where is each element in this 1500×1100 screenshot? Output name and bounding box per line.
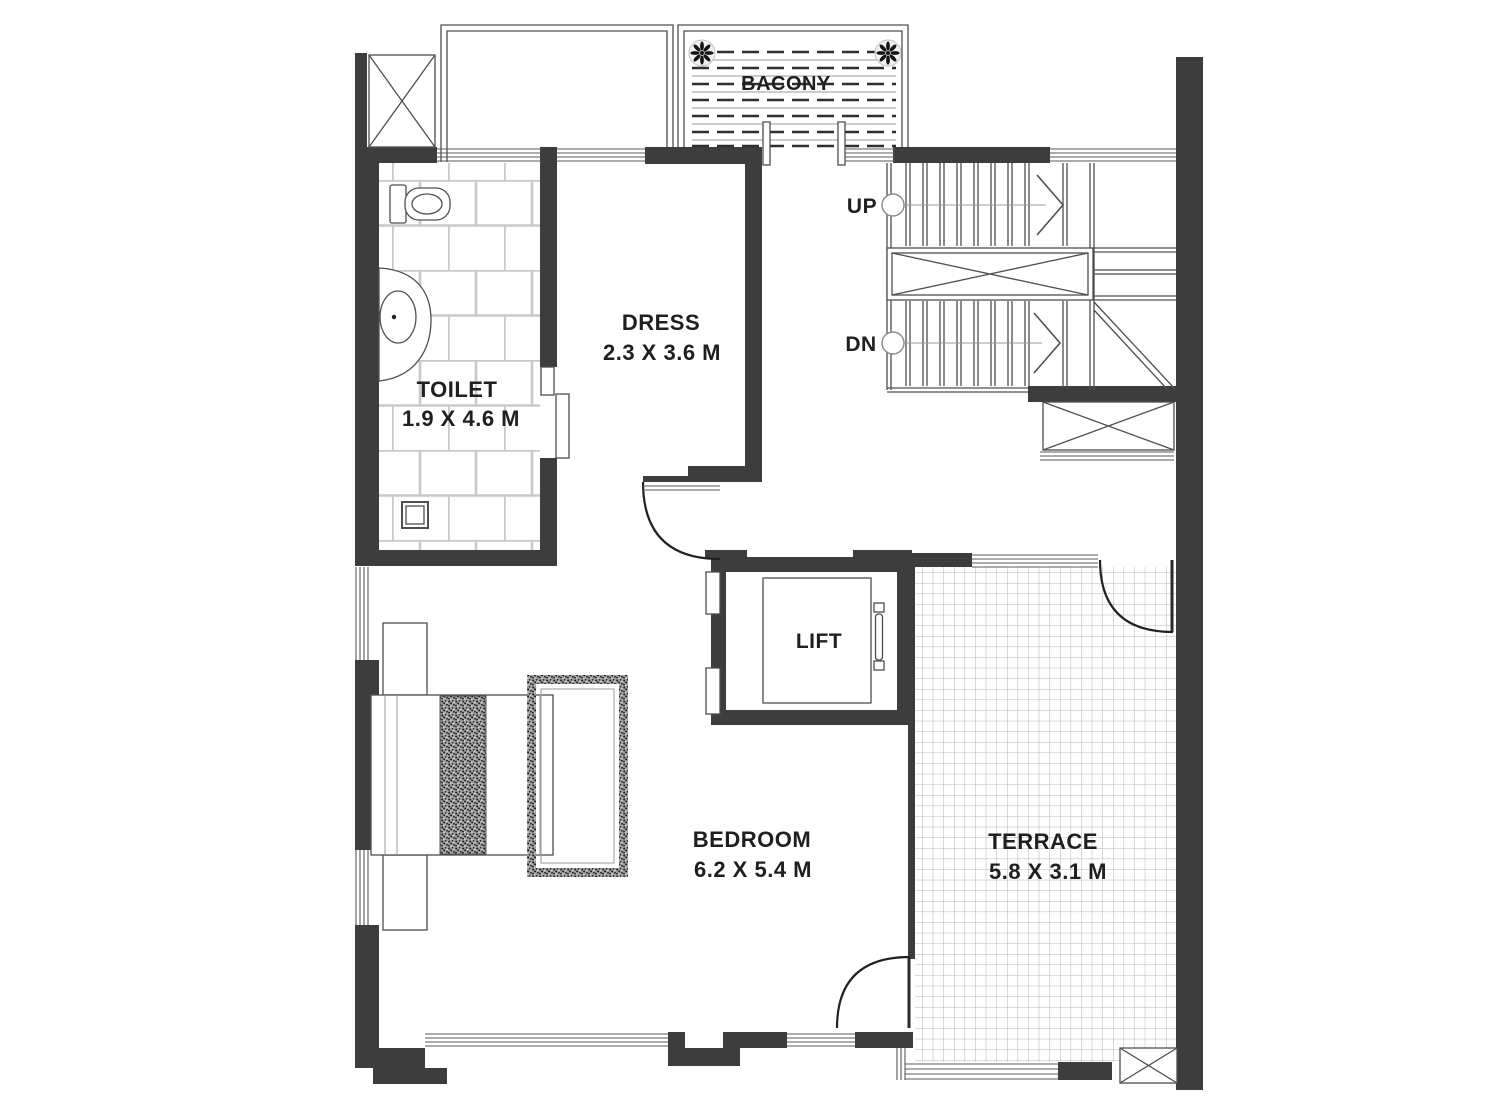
bed-blanket — [440, 696, 486, 854]
wall-right-outer — [1176, 57, 1203, 1090]
basin-drain-dot — [392, 315, 396, 319]
lift-jamb-upper — [706, 572, 720, 614]
wc-icon — [390, 185, 450, 223]
lift-handle-bar — [876, 614, 883, 660]
dress-room: DRESS 2.3 X 3.6 M — [603, 310, 721, 365]
strip-inner-parapet — [447, 31, 667, 162]
lift-jamb-lower — [706, 668, 720, 714]
wall-lift-top — [711, 557, 912, 572]
lift-label: LIFT — [796, 630, 842, 653]
balcony-deck-dashes — [692, 52, 896, 146]
wall-left-top — [355, 53, 367, 147]
bedroom-dimensions: 6.2 X 5.4 M — [694, 857, 812, 882]
window-terrace-top — [972, 555, 1098, 567]
wall-stair-bottom — [1028, 386, 1176, 402]
wall-toilet-right-lower — [540, 458, 557, 566]
window-bedroom-bottom-b — [787, 1034, 855, 1046]
terrace-dimensions: 5.8 X 3.1 M — [989, 859, 1107, 884]
window-bedroom-left-1 — [356, 567, 368, 660]
wall-toilet-bottom — [355, 550, 545, 566]
lift-room: LIFT — [706, 572, 884, 714]
nightstand-bottom — [383, 855, 427, 930]
wall-terrace-left — [908, 567, 915, 959]
balcony-door-post-left — [763, 122, 770, 165]
window-balcony-sill — [845, 149, 895, 161]
wall-stair-top — [893, 147, 1050, 163]
dress-label: DRESS — [622, 310, 700, 335]
window-bedroom-left-2 — [356, 850, 368, 925]
stair-up-marker — [882, 194, 904, 216]
wall-toilet-right-upper — [540, 147, 557, 367]
wall-terrace-bottom-seg — [1058, 1062, 1112, 1080]
dress-dimensions: 2.3 X 3.6 M — [603, 340, 721, 365]
bedroom-terrace-door-swing-arc — [837, 957, 910, 1028]
wall-dress-right — [745, 147, 762, 482]
plant-icon — [689, 40, 715, 66]
toilet-label: TOILET — [417, 377, 498, 402]
toilet-dimensions: 1.9 X 4.6 M — [402, 406, 520, 431]
lift-handle-top — [874, 603, 884, 612]
toilet-door-leaf — [556, 394, 569, 458]
stair-dn-marker — [882, 332, 904, 354]
floor-plan-drawing: BACONY — [0, 0, 1500, 1100]
wall-terrace-top-left — [908, 553, 972, 567]
wall-lift-tab-right — [853, 550, 912, 558]
window-stair-top-right — [1050, 149, 1176, 161]
dress-door-threshold — [643, 486, 720, 490]
wall-bottom-right-of-window — [855, 1032, 913, 1048]
stair-right-lines — [1094, 248, 1176, 300]
wc-tank — [390, 185, 406, 223]
wall-dress-top — [645, 147, 762, 164]
wall-bottom-pier-b — [723, 1032, 787, 1048]
stair-bottom-lines — [887, 388, 1028, 392]
wall-corner-step-1 — [355, 1048, 425, 1068]
toilet-door-frame — [541, 367, 554, 395]
dress-door-leaf — [643, 476, 720, 482]
wall-bedroom-left-low — [355, 925, 379, 1050]
terrace-grid-floor — [915, 567, 1176, 1062]
strip-outer-parapet — [441, 25, 673, 162]
staircase: UP DN — [845, 163, 1176, 392]
lift-door-handle-icon — [874, 603, 884, 670]
bedroom-label: BEDROOM — [693, 827, 811, 852]
stair-winder-diagonal — [1094, 302, 1175, 389]
window-bedroom-bottom-a — [425, 1034, 668, 1046]
floor-drain-icon — [402, 502, 428, 528]
nightstand-top — [383, 623, 427, 695]
floor-plan-canvas: BACONY — [0, 0, 1500, 1100]
balcony-door-post-right — [838, 122, 845, 165]
wall-lift-tab-left — [705, 550, 747, 558]
wall-bottom-pier-base — [668, 1048, 740, 1066]
wall-corner-step-2 — [373, 1068, 447, 1084]
wall-lift-bottom — [711, 710, 912, 725]
balcony-zone: BACONY — [678, 25, 908, 163]
balcony-label: BACONY — [741, 73, 831, 95]
dress-door-swing-arc — [643, 482, 720, 559]
open-strip — [441, 25, 673, 162]
stair-dn-label: DN — [845, 333, 876, 356]
wall-bottom-pier-a — [668, 1032, 685, 1048]
stair-up-label: UP — [847, 195, 877, 218]
wall-toilet-left — [355, 147, 379, 550]
bedroom-room: BEDROOM 6.2 X 5.4 M — [371, 623, 812, 930]
window-dress-top — [557, 149, 645, 161]
window-toilet-top — [437, 149, 541, 161]
terrace-label: TERRACE — [988, 829, 1098, 854]
bed-icon — [371, 695, 553, 855]
lift-handle-bottom — [874, 661, 884, 670]
plant-icon — [875, 40, 901, 66]
window-shaft-sill — [1040, 452, 1174, 460]
